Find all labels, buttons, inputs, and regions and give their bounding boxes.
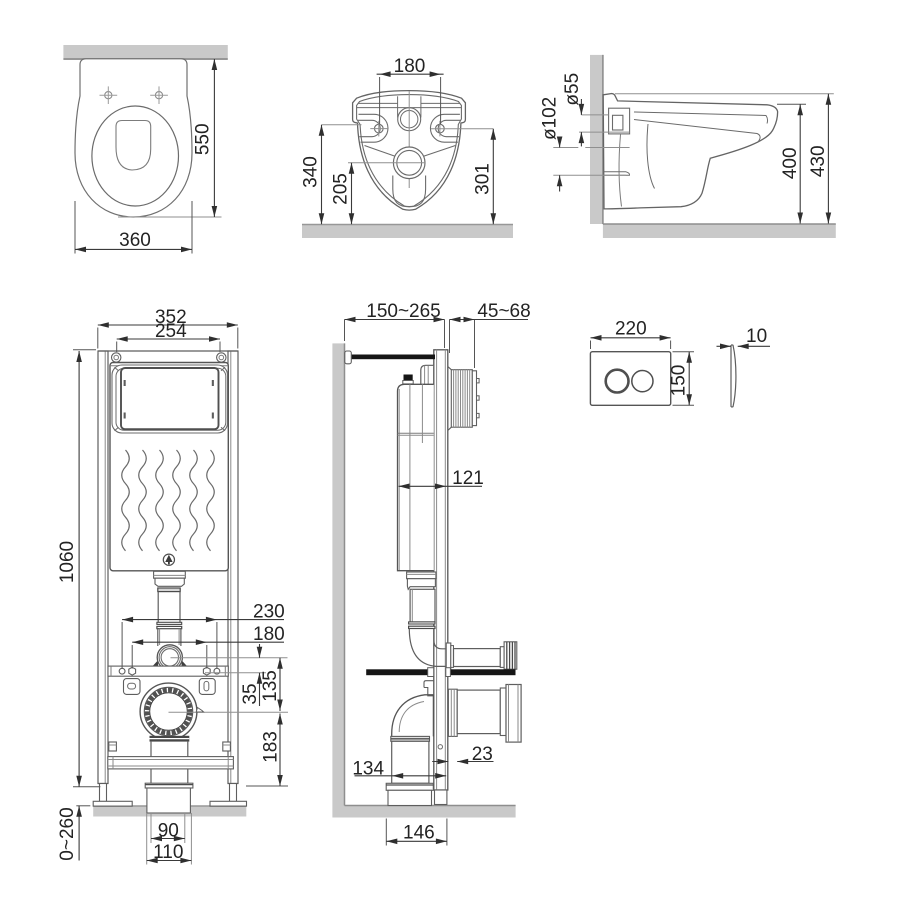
svg-text:400: 400 [780,147,801,179]
svg-text:ø55: ø55 [562,73,583,106]
svg-text:550: 550 [193,123,214,155]
svg-text:340: 340 [300,156,321,188]
svg-text:10: 10 [746,326,767,347]
svg-text:0~260: 0~260 [57,807,78,860]
svg-text:ø102: ø102 [539,97,560,140]
svg-text:183: 183 [261,731,282,763]
svg-text:150~265: 150~265 [366,301,441,322]
svg-text:134: 134 [352,758,384,779]
svg-text:45~68: 45~68 [477,301,530,322]
svg-text:430: 430 [808,145,829,177]
svg-text:230: 230 [253,601,285,622]
svg-text:220: 220 [615,318,647,339]
svg-text:180: 180 [253,624,285,645]
svg-text:150: 150 [669,365,690,397]
svg-text:1060: 1060 [57,541,78,583]
svg-text:180: 180 [394,56,426,77]
svg-text:205: 205 [331,173,352,205]
svg-text:135: 135 [260,670,281,702]
svg-text:23: 23 [472,744,493,765]
svg-text:35: 35 [240,683,261,704]
svg-text:90: 90 [158,820,179,841]
svg-text:146: 146 [403,822,435,843]
svg-text:254: 254 [155,321,187,342]
svg-text:301: 301 [472,163,493,195]
svg-text:360: 360 [119,230,151,251]
svg-text:110: 110 [153,842,183,863]
svg-text:121: 121 [452,468,484,489]
